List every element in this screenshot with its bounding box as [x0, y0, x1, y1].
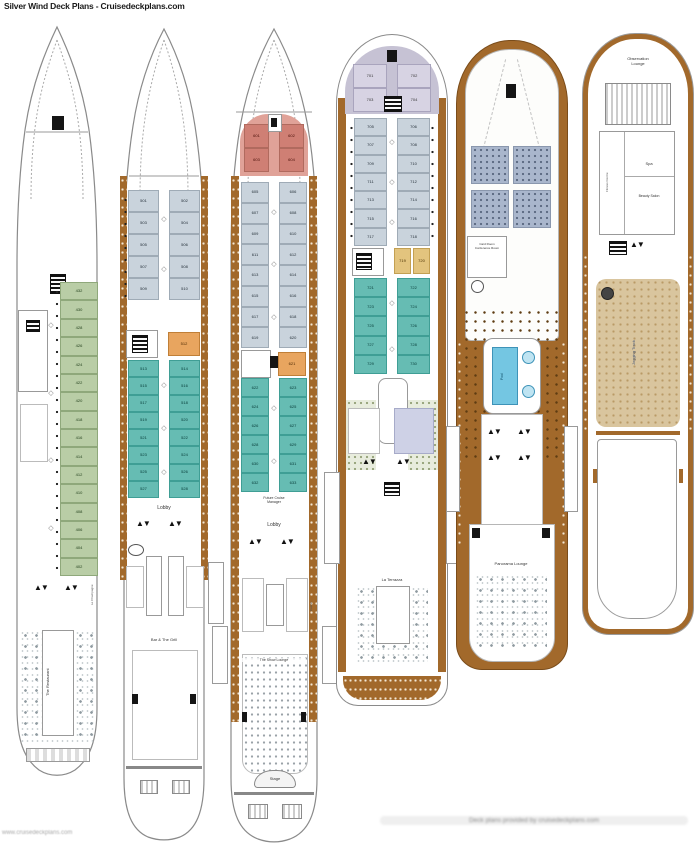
- deck4-green-cabins: 4324304284264244224204184164144124104084…: [60, 282, 98, 576]
- spa-label: Spa: [624, 162, 674, 167]
- observation-lounge-label: Observation Lounge: [588, 57, 688, 67]
- cabin-723: 723: [354, 297, 387, 316]
- corner-mark: [301, 712, 306, 722]
- deck-plans-image: Silver Wind Deck Plans - Cruisedeckplans…: [0, 0, 700, 848]
- open-lounge: [132, 650, 198, 760]
- stairs-icon: [362, 458, 376, 466]
- cabin-432: 432: [60, 282, 98, 300]
- stairs-icon: [630, 241, 644, 249]
- bow-equipment-icon: [387, 50, 397, 62]
- cabin-501: 501: [128, 190, 159, 212]
- cabin-527: 527: [128, 481, 159, 498]
- deck-notch: [679, 469, 683, 483]
- cabin-714: 714: [397, 191, 430, 209]
- cabin-609: 609: [241, 224, 269, 245]
- cabin-526: 526: [169, 464, 200, 481]
- lobby-marker: [389, 346, 394, 353]
- pool-pad: Pool: [483, 338, 541, 414]
- cabin-727: 727: [354, 336, 387, 355]
- pool: Pool: [492, 347, 518, 405]
- cabin-606: 606: [279, 182, 307, 203]
- cabin-504: 504: [169, 212, 200, 234]
- wood-deck-starboard: [438, 98, 446, 672]
- cabin-525: 525: [128, 464, 159, 481]
- cabin-624: 624: [241, 397, 269, 416]
- corner-mark: [242, 712, 247, 722]
- cabin-630: 630: [241, 454, 269, 473]
- lobby-marker: [389, 179, 394, 186]
- jogging-track-label: Jogging Track: [632, 303, 644, 403]
- stairs-icon: [517, 454, 531, 462]
- cabin-710: 710: [397, 155, 430, 173]
- cabin-626: 626: [241, 416, 269, 435]
- stairs-icon: [396, 458, 410, 466]
- casino-label: Casino: [310, 580, 318, 632]
- stairs-icon: [64, 584, 78, 592]
- stern-equipment: [140, 780, 158, 794]
- service-room: [20, 404, 48, 462]
- deck4-plan: 4324304284264244224204184164144124104084…: [6, 24, 108, 788]
- cabin-705: 705: [354, 118, 387, 136]
- cabin-521: 521: [128, 429, 159, 446]
- cabin-510: 510: [169, 278, 200, 300]
- deck6-plan: 601602603604 605606607608609610611612613…: [218, 26, 330, 848]
- corridor-markers: [46, 292, 56, 562]
- cabin-628: 628: [241, 435, 269, 454]
- card-room-label-line2: Conference Room: [468, 247, 506, 251]
- cabin-503: 503: [128, 212, 159, 234]
- card-room-tables: [471, 190, 509, 228]
- beauty-salon-label: Beauty Salon: [624, 194, 674, 198]
- cabin-513: 513: [128, 360, 159, 377]
- deck6-orange-cabin: 621: [278, 352, 306, 376]
- cabin-702: 702: [397, 64, 431, 88]
- cabin-519: 519: [128, 412, 159, 429]
- corridor-markers: [268, 186, 280, 344]
- cabin-632: 632: [241, 473, 269, 492]
- cabin-528: 528: [169, 481, 200, 498]
- cabin-512: 512: [168, 332, 200, 356]
- lobby-marker: [271, 458, 276, 465]
- deck8-plan: Card Room Conference Room Pool Panorama …: [456, 40, 568, 670]
- cabin-707: 707: [354, 136, 387, 154]
- cabin-706: 706: [397, 118, 430, 136]
- stairs-icon: [517, 428, 531, 436]
- cabin-507: 507: [128, 256, 159, 278]
- cabin-426: 426: [60, 337, 98, 355]
- cabin-422: 422: [60, 374, 98, 392]
- cabin-629: 629: [279, 435, 307, 454]
- cabin-719: 719: [394, 248, 411, 274]
- pool-label: Pool: [500, 354, 510, 398]
- cabin-621: 621: [278, 352, 306, 376]
- cabin-608: 608: [279, 203, 307, 224]
- shop-room: [146, 556, 162, 616]
- lobby-marker: [48, 390, 53, 397]
- room-divider: [624, 132, 625, 234]
- deck-rail-dots: [583, 253, 588, 433]
- stage: Stage: [254, 770, 296, 788]
- cabin-625: 625: [279, 397, 307, 416]
- equipment-icon: [506, 84, 516, 98]
- deck7-yellow-cabins: 719720: [394, 248, 430, 274]
- cabin-618: 618: [279, 307, 307, 328]
- corner-mark: [542, 528, 550, 538]
- lobby-marker: [161, 382, 166, 389]
- card-room-tables: [471, 146, 509, 184]
- show-lounge-label: The Show Lounge: [242, 658, 306, 662]
- lobby-marker: [161, 266, 166, 273]
- deck5-plan: 501502503504505506507508509510 512 51351…: [112, 26, 216, 846]
- elevator-icon: [384, 96, 402, 112]
- stairs-icon: [136, 520, 150, 528]
- stairs-icon: [248, 538, 262, 546]
- cabin-729: 729: [354, 355, 387, 374]
- cabin-410: 410: [60, 484, 98, 502]
- cabin-715: 715: [354, 209, 387, 227]
- side-wing: [446, 426, 460, 512]
- deck-rail-dots: [688, 253, 693, 433]
- promenade-deck-port: [231, 176, 239, 722]
- stairs-icon: [487, 454, 501, 462]
- office-label-line2: Manager: [244, 500, 304, 504]
- cabin-430: 430: [60, 300, 98, 318]
- deck-notch: [593, 469, 597, 483]
- side-room: [286, 578, 308, 632]
- stairs-icon: [280, 538, 294, 546]
- service-room: [241, 350, 271, 378]
- cabin-724: 724: [397, 297, 430, 316]
- cabin-508: 508: [169, 256, 200, 278]
- cabin-412: 412: [60, 466, 98, 484]
- wood-deck-port: [338, 98, 346, 672]
- deck9-plan: Observation Lounge Fitness Centre Spa Be…: [583, 34, 693, 634]
- cabin-623: 623: [279, 378, 307, 397]
- corridor-markers: [158, 194, 170, 294]
- cabin-509: 509: [128, 278, 159, 300]
- cabin-517: 517: [128, 395, 159, 412]
- lobby-marker: [161, 425, 166, 432]
- shop-room: [168, 556, 184, 616]
- cabin-506: 506: [169, 234, 200, 256]
- cabin-720: 720: [413, 248, 430, 274]
- cabin-610: 610: [279, 224, 307, 245]
- sun-deck-lower: [597, 439, 677, 619]
- stern-band: [126, 766, 202, 769]
- cabin-614: 614: [279, 265, 307, 286]
- elevator-icon: [26, 320, 40, 332]
- elevator-icon: [356, 253, 372, 270]
- cabin-722: 722: [397, 278, 430, 297]
- stern-band: [234, 792, 314, 795]
- elevator-icon: [132, 335, 148, 353]
- whirlpool-icon: [471, 280, 484, 293]
- whirlpool-icon: [601, 287, 614, 300]
- cabin-620: 620: [279, 327, 307, 348]
- cabin-502: 502: [169, 190, 200, 212]
- cabin-611: 611: [241, 244, 269, 265]
- piano-icon: [128, 544, 144, 556]
- office-label: Future Cruise Manager: [244, 496, 304, 504]
- watermark-smudge: Deck plans provided by cruisedeckplans.c…: [380, 816, 688, 825]
- cabin-door-dots: [350, 120, 353, 244]
- stairs-icon: [168, 520, 182, 528]
- cabin-424: 424: [60, 356, 98, 374]
- footer-left-text: www.cruisedeckplans.com: [2, 830, 72, 836]
- side-room: [186, 566, 204, 608]
- side-wing: [564, 426, 578, 512]
- cabin-633: 633: [279, 473, 307, 492]
- cabin-601: 601: [244, 124, 269, 148]
- lobby-marker: [389, 300, 394, 307]
- card-room-tables: [513, 190, 551, 228]
- card-room-label: Card Room Conference Room: [467, 236, 507, 278]
- deck7-plan: 701702703704 705706707708709710711712713…: [336, 34, 448, 706]
- cabin-602: 602: [279, 124, 304, 148]
- cabin-408: 408: [60, 503, 98, 521]
- deck5-orange-cabin: 512: [168, 332, 200, 356]
- lobby-marker: [271, 209, 276, 216]
- cabin-607: 607: [241, 203, 269, 224]
- whirlpool-icon: [522, 385, 535, 398]
- corridor-markers: [386, 122, 398, 242]
- fitness-label: Fitness Centre: [606, 138, 616, 226]
- stern-equipment: [282, 804, 302, 819]
- page-title: Silver Wind Deck Plans - Cruisedeckplans…: [4, 1, 185, 11]
- cabin-617: 617: [241, 307, 269, 328]
- cabin-514: 514: [169, 360, 200, 377]
- corridor-markers: [158, 364, 170, 494]
- stern-equipment: [172, 780, 190, 794]
- promenade-deck-starboard: [309, 176, 317, 722]
- room-divider: [624, 176, 674, 177]
- cabin-605: 605: [241, 182, 269, 203]
- bow-equipment-icon: [271, 118, 277, 127]
- side-wing: [324, 472, 340, 564]
- stairs-icon: [487, 428, 501, 436]
- cabin-428: 428: [60, 319, 98, 337]
- cabin-616: 616: [279, 286, 307, 307]
- cabin-603: 603: [244, 148, 269, 172]
- show-lounge-seats: [242, 654, 308, 774]
- terrazza-buffet: [376, 586, 410, 644]
- side-room: [242, 578, 264, 632]
- corridor-markers: [386, 280, 398, 372]
- cabin-716: 716: [397, 209, 430, 227]
- stern-wood-deck: [343, 676, 441, 700]
- lobby-marker: [389, 139, 394, 146]
- cabin-416: 416: [60, 429, 98, 447]
- cabin-717: 717: [354, 228, 387, 246]
- cabin-712: 712: [397, 173, 430, 191]
- cabin-door-dots: [431, 120, 434, 244]
- whirlpool-icon: [522, 351, 535, 364]
- lobby-marker: [161, 216, 166, 223]
- panorama-lounge-label: Panorama Lounge: [469, 562, 553, 567]
- lobby-label: Lobby: [244, 522, 304, 528]
- cabin-406: 406: [60, 521, 98, 539]
- cabin-713: 713: [354, 191, 387, 209]
- hull-outline: Observation Lounge Fitness Centre Spa Be…: [583, 34, 693, 634]
- elevator-icon: [609, 241, 627, 255]
- card-room-tables: [513, 146, 551, 184]
- cabin-703: 703: [353, 88, 387, 112]
- cabin-728: 728: [397, 336, 430, 355]
- cabin-730: 730: [397, 355, 430, 374]
- cabin-615: 615: [241, 286, 269, 307]
- cabin-520: 520: [169, 412, 200, 429]
- cabin-711: 711: [354, 173, 387, 191]
- elevator-icon: [384, 482, 400, 496]
- corner-mark: [132, 694, 138, 704]
- cabin-524: 524: [169, 446, 200, 463]
- lobby-marker: [48, 322, 53, 329]
- deck-band: [596, 431, 680, 435]
- restaurant-label: The Restaurant: [46, 636, 68, 728]
- lobby-marker: [271, 261, 276, 268]
- lobby-marker: [48, 525, 53, 532]
- cabin-414: 414: [60, 447, 98, 465]
- cabin-622: 622: [241, 378, 269, 397]
- lobby-marker: [48, 457, 53, 464]
- lobby-label: Lobby: [134, 505, 194, 511]
- cabin-721: 721: [354, 278, 387, 297]
- card-room: [394, 408, 434, 454]
- cabin-522: 522: [169, 429, 200, 446]
- cabin-505: 505: [128, 234, 159, 256]
- cabin-418: 418: [60, 411, 98, 429]
- stairs-icon: [34, 584, 48, 592]
- observation-seating: [605, 83, 671, 125]
- cabin-door-dots: [124, 192, 127, 298]
- cabin-515: 515: [128, 377, 159, 394]
- cabin-631: 631: [279, 454, 307, 473]
- cabin-612: 612: [279, 244, 307, 265]
- terrazza-label: La Terrazza: [357, 578, 427, 583]
- cabin-726: 726: [397, 316, 430, 335]
- cabin-404: 404: [60, 539, 98, 557]
- shop-room: [266, 584, 284, 626]
- cabin-613: 613: [241, 265, 269, 286]
- cabin-718: 718: [397, 228, 430, 246]
- promenade-deck-starboard: [201, 176, 208, 580]
- galley-band: [26, 748, 90, 762]
- side-venue-label: Le Champagne: [91, 572, 100, 618]
- stern-equipment: [248, 804, 268, 819]
- cabin-619: 619: [241, 327, 269, 348]
- spa-complex: Fitness Centre Spa Beauty Salon: [599, 131, 675, 235]
- lobby-marker: [271, 314, 276, 321]
- cabin-420: 420: [60, 392, 98, 410]
- corner-mark: [190, 694, 196, 704]
- cabin-701: 701: [353, 64, 387, 88]
- cabin-627: 627: [279, 416, 307, 435]
- lobby-marker: [271, 405, 276, 412]
- cabin-523: 523: [128, 446, 159, 463]
- corridor-markers: [268, 382, 280, 488]
- side-wing: [212, 626, 228, 684]
- observation-label-line2: Lounge: [588, 62, 688, 67]
- cabin-704: 704: [397, 88, 431, 112]
- bow-equipment-icon: [52, 116, 64, 130]
- venue-label: Bar & The Grill: [129, 638, 199, 643]
- lobby-marker: [161, 469, 166, 476]
- sun-deck-upper: Jogging Track: [596, 279, 680, 427]
- cabin-708: 708: [397, 136, 430, 154]
- side-room: [126, 566, 144, 608]
- cabin-725: 725: [354, 316, 387, 335]
- cabin-709: 709: [354, 155, 387, 173]
- corner-mark: [472, 528, 480, 538]
- side-room: [348, 408, 380, 454]
- cabin-516: 516: [169, 377, 200, 394]
- cabin-518: 518: [169, 395, 200, 412]
- lobby-marker: [389, 219, 394, 226]
- cabin-604: 604: [279, 148, 304, 172]
- lounge-tables: [475, 574, 547, 648]
